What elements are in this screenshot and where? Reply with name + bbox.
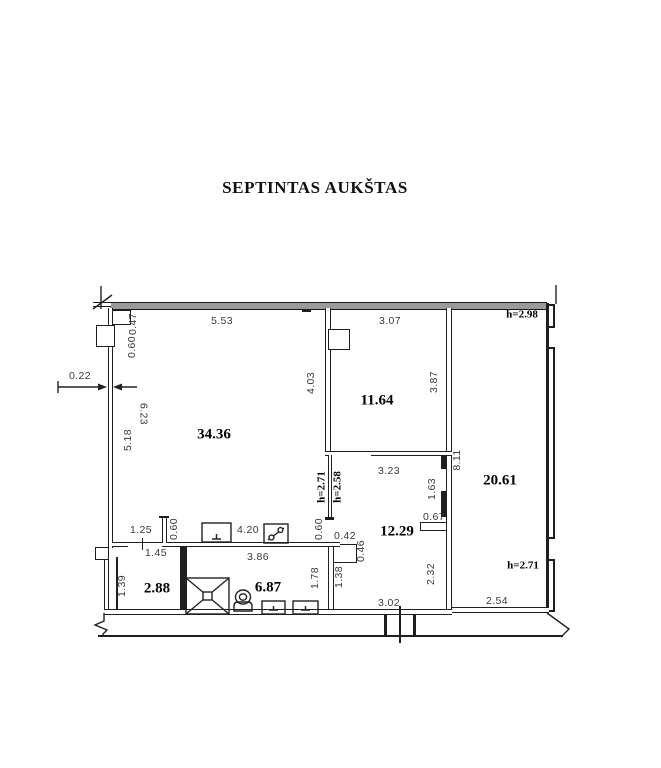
dim-pilaster-depth: 0.47	[128, 313, 139, 335]
dim-bathroom-right: 1.78	[310, 567, 321, 589]
room-area-hall: 12.29	[380, 525, 414, 540]
dim-arrow-lines	[58, 381, 137, 393]
height-bottom-right: h=2.71	[507, 561, 539, 572]
dim-right-room-side: 8.11	[452, 449, 463, 470]
dim-kitchen-offset: 1.25	[130, 525, 152, 536]
dim-hall-door-side: 1.63	[427, 478, 438, 500]
break-mark-bottom-right	[547, 613, 569, 637]
dim-top-width-left: 5.53	[211, 316, 233, 327]
height-door-left: h=2.71	[317, 471, 328, 503]
room-area-right: 20.61	[483, 474, 517, 489]
break-mark-bottom-left	[95, 613, 107, 637]
dim-kitchen-run: 4.20	[237, 525, 259, 536]
plan-symbols	[0, 0, 661, 768]
height-top-right: h=2.98	[506, 310, 538, 321]
dim-closet-door: 1.45	[145, 548, 167, 559]
dim-living-left-a: 5.18	[123, 429, 134, 451]
dim-living-left-b: 6.23	[138, 403, 149, 425]
floorplan-page: SEPTINTAS AUKŠTAS	[0, 0, 661, 768]
dim-pilaster-width: 0.60	[127, 336, 138, 358]
room-area-living: 34.36	[197, 428, 231, 443]
dim-wall-thickness: 0.22	[69, 371, 91, 382]
dim-right-room-bottom: 2.54	[486, 596, 508, 607]
dim-top-width-right: 3.07	[379, 316, 401, 327]
break-mark-top-left	[93, 286, 112, 309]
dim-bedroom-right: 3.87	[429, 371, 440, 393]
dim-hall-wall: 1.38	[334, 566, 345, 588]
room-area-closet: 2.88	[144, 582, 170, 597]
dim-partition-stub: 0.60	[314, 518, 325, 540]
dim-bathroom-width: 3.86	[247, 552, 269, 563]
dim-arrowhead-left	[98, 384, 107, 391]
height-door-right: h=2.58	[333, 471, 344, 503]
dim-kitchen-stub: 0.60	[169, 518, 180, 540]
room-area-bedroom: 11.64	[361, 394, 394, 409]
dim-hall-top: 3.23	[378, 466, 400, 477]
dim-hall-bottom: 3.02	[378, 598, 400, 609]
dim-niche-depth: 0.46	[356, 540, 367, 562]
dim-wall-stub-right: 0.67	[423, 512, 445, 523]
dim-hall-side: 2.32	[426, 563, 437, 585]
dim-closet-side: 1.39	[117, 575, 128, 597]
dim-bedroom-left: 4.03	[306, 372, 317, 394]
dim-niche-width: 0.42	[334, 531, 356, 542]
room-area-bathroom: 6.87	[255, 581, 281, 596]
dim-arrowhead-right	[113, 384, 122, 391]
